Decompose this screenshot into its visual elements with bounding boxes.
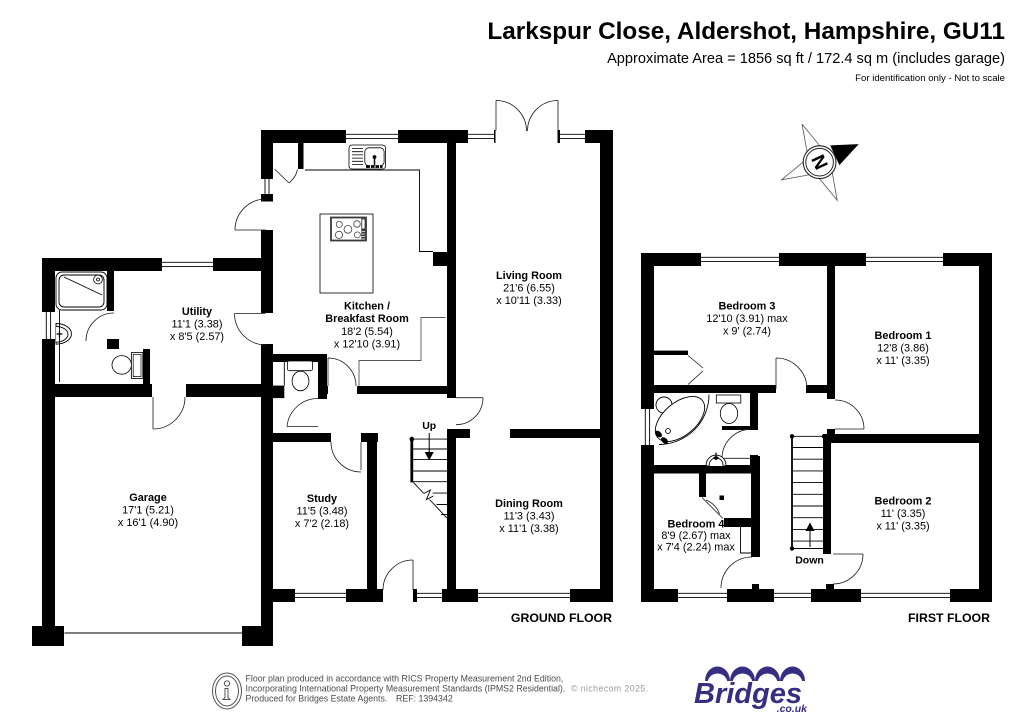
svg-text:REF: 1394342: REF: 1394342 (396, 694, 453, 704)
svg-text:Produced for Bridges Estate Ag: Produced for Bridges Estate Agents. (246, 694, 388, 704)
svg-text:12'8 (3.86): 12'8 (3.86) (877, 343, 929, 355)
svg-text:11'3 (3.43): 11'3 (3.43) (504, 511, 555, 523)
svg-text:Bedroom 3: Bedroom 3 (719, 301, 776, 313)
svg-text:Approximate Area = 1856 sq ft: Approximate Area = 1856 sq ft / 172.4 sq… (607, 51, 1005, 67)
svg-text:x 16'1 (4.90): x 16'1 (4.90) (118, 517, 178, 529)
svg-text:17'1 (5.21): 17'1 (5.21) (122, 505, 174, 517)
svg-text:11'5 (3.48): 11'5 (3.48) (297, 506, 348, 518)
svg-text:Utility: Utility (182, 306, 212, 318)
svg-text:12'10 (3.91) max: 12'10 (3.91) max (706, 313, 788, 325)
svg-text:Bedroom 4: Bedroom 4 (668, 519, 725, 531)
svg-text:x 11'1 (3.38): x 11'1 (3.38) (499, 523, 558, 535)
svg-text:x 7'4 (2.24) max: x 7'4 (2.24) max (657, 542, 735, 554)
svg-text:.co.uk: .co.uk (777, 703, 809, 715)
svg-text:© nichecom 2025.: © nichecom 2025. (571, 684, 648, 694)
svg-text:x 9' (2.74): x 9' (2.74) (723, 326, 771, 338)
svg-text:For identification only - Not: For identification only - Not to scale (855, 73, 1005, 84)
svg-text:Down: Down (795, 555, 824, 567)
svg-text:Incorporating International Pr: Incorporating International Property Mea… (246, 684, 566, 694)
svg-text:x 11' (3.35): x 11' (3.35) (876, 521, 929, 533)
svg-text:Study: Study (307, 493, 337, 505)
svg-text:Floor plan produced in accorda: Floor plan produced in accordance with R… (246, 674, 564, 684)
svg-text:Larkspur Close, Aldershot, Ham: Larkspur Close, Aldershot, Hampshire, GU… (487, 18, 1005, 45)
svg-text:11'1 (3.38): 11'1 (3.38) (172, 319, 223, 331)
svg-text:FIRST FLOOR: FIRST FLOOR (908, 611, 990, 625)
svg-text:18'2 (5.54): 18'2 (5.54) (341, 326, 393, 338)
svg-text:Kitchen /: Kitchen / (344, 301, 390, 313)
svg-text:x 8'5 (2.57): x 8'5 (2.57) (170, 331, 224, 343)
svg-text:x 11' (3.35): x 11' (3.35) (876, 355, 929, 367)
svg-text:Dining Room: Dining Room (495, 498, 563, 510)
svg-text:Garage: Garage (129, 492, 167, 504)
svg-text:11' (3.35): 11' (3.35) (881, 508, 926, 520)
svg-text:Breakfast Room: Breakfast Room (325, 313, 409, 325)
svg-text:x 7'2 (2.18): x 7'2 (2.18) (295, 518, 349, 530)
svg-text:Up: Up (422, 420, 436, 432)
svg-text:x 12'10 (3.91): x 12'10 (3.91) (334, 339, 400, 351)
svg-text:Living Room: Living Room (496, 270, 562, 282)
svg-text:GROUND FLOOR: GROUND FLOOR (511, 611, 612, 625)
svg-text:Bedroom 2: Bedroom 2 (875, 496, 932, 508)
svg-text:x 10'11 (3.33): x 10'11 (3.33) (496, 295, 561, 307)
svg-text:8'9 (2.67) max: 8'9 (2.67) max (661, 530, 731, 542)
svg-text:21'6 (6.55): 21'6 (6.55) (503, 283, 555, 295)
svg-text:Bedroom 1: Bedroom 1 (875, 330, 932, 342)
